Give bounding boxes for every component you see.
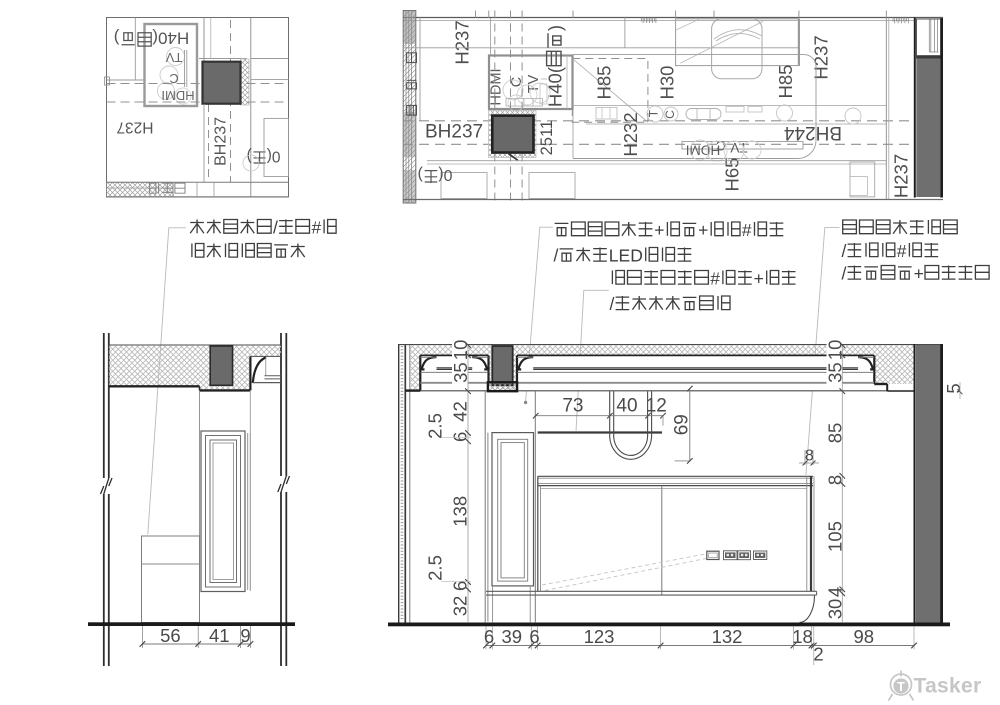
svg-text:6: 6 — [450, 581, 471, 591]
svg-text:2.5: 2.5 — [425, 555, 446, 581]
svg-text:/: / — [842, 264, 847, 284]
svg-text:8: 8 — [824, 475, 845, 485]
svg-text:69: 69 — [672, 414, 693, 435]
svg-text:/: / — [273, 218, 278, 238]
svg-text:40: 40 — [616, 395, 637, 416]
svg-text:): ) — [114, 29, 120, 48]
svg-text:): ) — [417, 166, 422, 183]
svg-text:HDMI: HDMI — [161, 88, 194, 103]
svg-text:105: 105 — [824, 521, 845, 552]
svg-text:6: 6 — [484, 626, 494, 647]
svg-text:+: + — [914, 264, 924, 284]
svg-text:73: 73 — [562, 395, 583, 416]
svg-text:9: 9 — [240, 625, 250, 646]
svg-text:85: 85 — [824, 423, 845, 444]
svg-text:56: 56 — [160, 625, 181, 646]
svg-text:BH244: BH244 — [783, 122, 842, 143]
svg-text:LED: LED — [609, 246, 643, 266]
svg-text:H237: H237 — [890, 154, 911, 198]
svg-text:6: 6 — [529, 626, 539, 647]
svg-text:98: 98 — [854, 626, 875, 647]
svg-text:42: 42 — [450, 401, 471, 422]
svg-text:H85: H85 — [593, 66, 614, 100]
svg-text:/: / — [554, 246, 559, 266]
svg-text:18: 18 — [792, 626, 813, 647]
svg-text:+: + — [654, 220, 664, 240]
svg-text:TV: TV — [526, 74, 542, 93]
svg-text:12: 12 — [646, 395, 667, 416]
svg-text:H40(: H40( — [152, 29, 189, 48]
svg-text:): ) — [544, 25, 565, 31]
svg-text:2511: 2511 — [538, 120, 556, 155]
svg-text:41: 41 — [209, 625, 230, 646]
svg-text:T: T — [897, 680, 905, 694]
svg-text:2: 2 — [813, 644, 823, 665]
svg-text:32: 32 — [450, 596, 471, 617]
svg-text:H30: H30 — [656, 66, 677, 100]
svg-text:6: 6 — [450, 432, 471, 442]
svg-text:/: / — [842, 241, 847, 261]
svg-text:TV: TV — [165, 50, 182, 65]
svg-text:123: 123 — [584, 626, 615, 647]
svg-text:30: 30 — [824, 599, 845, 620]
svg-text:10: 10 — [450, 340, 471, 361]
svg-text:+: + — [698, 220, 708, 240]
svg-text:H232: H232 — [620, 112, 641, 156]
svg-text:39: 39 — [502, 626, 523, 647]
svg-text:H237: H237 — [116, 118, 153, 135]
svg-text:C: C — [663, 110, 677, 119]
svg-text:#: # — [710, 269, 720, 289]
svg-text:132: 132 — [712, 626, 743, 647]
svg-text:#: # — [897, 241, 907, 261]
svg-text:H237: H237 — [810, 35, 831, 79]
svg-text:HDMI: HDMI — [686, 143, 721, 158]
svg-text:138: 138 — [450, 496, 471, 527]
svg-text:35: 35 — [450, 362, 471, 383]
svg-text:#: # — [312, 218, 322, 238]
svg-text:+: + — [754, 269, 764, 289]
svg-text:BH237: BH237 — [213, 117, 230, 166]
svg-text:0(: 0( — [438, 166, 453, 183]
svg-text:0(: 0( — [266, 148, 281, 165]
svg-text:Tasker: Tasker — [914, 675, 982, 698]
svg-text:H85: H85 — [775, 65, 796, 99]
svg-text:T: T — [647, 109, 661, 117]
svg-text:8: 8 — [805, 448, 814, 465]
svg-text:H237: H237 — [452, 20, 473, 64]
svg-text:4: 4 — [824, 587, 845, 597]
svg-text:35: 35 — [824, 362, 845, 383]
svg-text:#: # — [742, 220, 752, 240]
svg-text:/: / — [610, 294, 615, 314]
svg-text:HDMI: HDMI — [488, 68, 504, 105]
svg-text:H65: H65 — [721, 158, 742, 192]
svg-text:BH237: BH237 — [425, 122, 483, 143]
svg-text:2.5: 2.5 — [425, 413, 446, 439]
svg-text:10: 10 — [824, 340, 845, 361]
